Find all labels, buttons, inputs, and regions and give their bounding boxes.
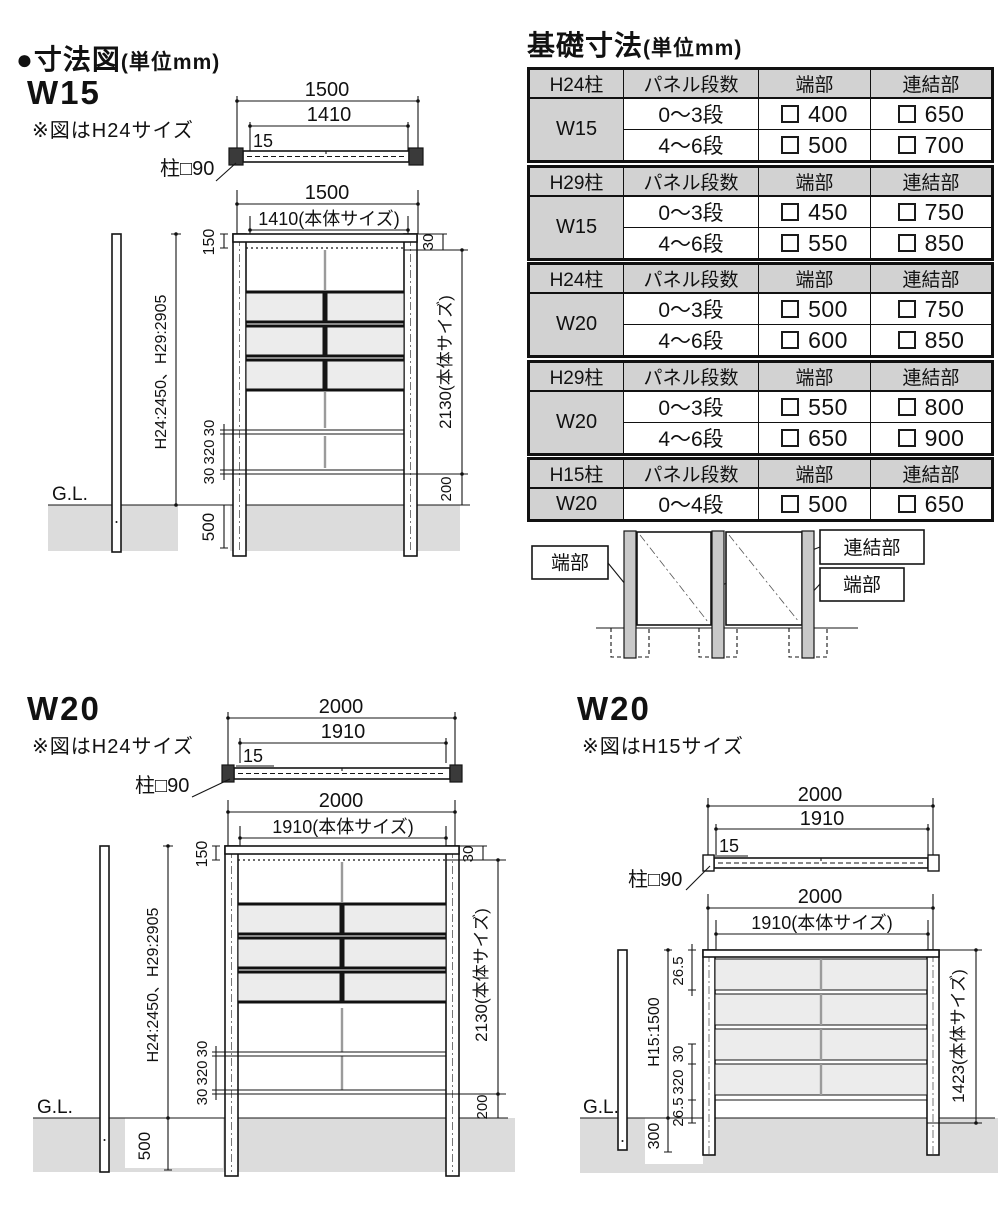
end-cell: 600 (759, 325, 871, 357)
dim-overall: 1500 (305, 79, 350, 101)
dim-top-offset: 26.5 (670, 956, 687, 985)
post-size-label: 柱□90 (135, 774, 189, 797)
dim-inner: 1910 (800, 808, 845, 830)
dim-body-height: 1423(本体サイズ) (949, 969, 968, 1103)
dim-embed: 500 (135, 1132, 154, 1160)
joint-cell: 700 (871, 130, 993, 162)
size-cell: W15 (529, 98, 624, 162)
col-joint-part: 連結部 (871, 459, 993, 489)
end-cell: 450 (759, 196, 871, 228)
joint-cell: 650 (871, 98, 993, 130)
joint-cell: 650 (871, 488, 993, 521)
col-post-type: H29柱 (529, 167, 624, 197)
post-size-label: 柱□90 (160, 157, 214, 180)
post-joint (712, 531, 724, 658)
w15-front-view: 1500 1410(本体サイズ) 150 H24: (48, 182, 470, 556)
square-dim-icon (898, 105, 916, 123)
end-cell: 550 (759, 391, 871, 423)
dim-rail-b: 30 (201, 468, 218, 485)
steps-cell: 0〜3段 (624, 98, 759, 130)
col-post-type: H24柱 (529, 69, 624, 99)
col-panel-steps: パネル段数 (624, 362, 759, 392)
dim-overall: 2000 (319, 790, 364, 812)
table-row: W15 0〜3段 450 750 (529, 196, 993, 228)
size-cell: W20 (529, 488, 624, 521)
square-dim-icon (781, 105, 799, 123)
table-row: W20 0〜3段 550 800 (529, 391, 993, 423)
square-dim-icon (781, 495, 799, 513)
post-end-right (802, 531, 814, 658)
panel-rows (246, 292, 404, 390)
w15-top-view: 1500 1410 15 柱□90 (160, 79, 423, 181)
foundation-table-h24-w15: H24柱 パネル段数 端部 連結部 W15 0〜3段 400 650 4〜6段 … (527, 67, 994, 163)
joint-cell: 800 (871, 391, 993, 423)
dim-offset: 15 (243, 746, 263, 766)
col-end-part: 端部 (759, 362, 871, 392)
square-dim-icon (898, 300, 916, 318)
foundation-table-h29-w15: H29柱 パネル段数 端部 連結部 W15 0〜3段 450 750 4〜6段 … (527, 165, 994, 261)
dim-overall: 2000 (798, 784, 843, 806)
col-post-type: H29柱 (529, 362, 624, 392)
ground-level-label: G.L. (37, 1097, 73, 1118)
end-cell: 400 (759, 98, 871, 130)
w20-h15-front-view: 2000 1910(本体サイズ) 26.5 H15:1500 30 320 26… (580, 886, 998, 1173)
steps-cell: 4〜6段 (624, 130, 759, 162)
post-end-left (624, 531, 636, 658)
end-cell: 550 (759, 228, 871, 260)
w20-h15-top-view: 2000 1910 15 柱□90 (628, 784, 939, 891)
dim-post-height: H24:2450、H29:2905 (145, 908, 162, 1063)
dim-rail-a: 30 (194, 1041, 211, 1058)
foundation-table-h24-w20: H24柱 パネル段数 端部 連結部 W20 0〜3段 500 750 4〜6段 … (527, 262, 994, 358)
dim-post-height: H15:1500 (646, 997, 663, 1066)
title-text: ●寸法図 (16, 44, 121, 75)
dim-top-offset: 150 (201, 229, 218, 256)
square-dim-icon (781, 398, 799, 416)
dim-offset: 15 (253, 131, 273, 151)
square-dim-icon (781, 136, 799, 154)
post-size-label: 柱□90 (628, 868, 682, 891)
dim-rail-b: 26.5 (670, 1097, 687, 1126)
end-cell: 500 (759, 130, 871, 162)
joint-cell: 750 (871, 196, 993, 228)
size-cell: W15 (529, 196, 624, 260)
top-rail (233, 234, 417, 242)
leader-line (192, 779, 230, 797)
end-post (112, 234, 121, 552)
joint-part-label: 連結部 (843, 537, 900, 559)
end-part-label-right: 端部 (843, 574, 881, 596)
dim-rail-a: 30 (670, 1046, 687, 1063)
dim-inner: 1410 (307, 104, 352, 126)
foundation-table-h29-w20: H29柱 パネル段数 端部 連結部 W20 0〜3段 550 800 4〜6段 … (527, 360, 994, 456)
dim-inner: 1910(本体サイズ) (751, 913, 893, 933)
foundation-table-h15-w20: H15柱 パネル段数 端部 連結部 W20 0〜4段 500 650 (527, 457, 994, 522)
steps-cell: 0〜3段 (624, 391, 759, 423)
dim-body-height: 2130(本体サイズ) (472, 908, 491, 1042)
square-dim-icon (898, 203, 916, 221)
square-dim-icon (781, 300, 799, 318)
steps-cell: 0〜4段 (624, 488, 759, 521)
square-dim-icon (898, 495, 916, 513)
dim-embed: 300 (646, 1123, 663, 1150)
col-end-part: 端部 (759, 459, 871, 489)
dim-rail-gap: 320 (670, 1069, 687, 1094)
ground-hatch (48, 505, 460, 551)
dim-offset: 15 (719, 836, 739, 856)
dim-body-height: 2130(本体サイズ) (436, 295, 455, 429)
bottom-rails (216, 1052, 446, 1094)
bottom-rails (224, 430, 404, 474)
dim-top-offset: 150 (194, 841, 211, 868)
w20-h24-front-view: 2000 1910(本体サイズ) 150 H24: (33, 790, 515, 1176)
dim-post-height: H24:2450、H29:2905 (153, 295, 170, 450)
w20-h24-top-view: 2000 1910 15 柱□90 (135, 696, 462, 797)
joint-cell: 900 (871, 423, 993, 455)
col-joint-part: 連結部 (871, 362, 993, 392)
dim-inner: 1910(本体サイズ) (272, 817, 414, 837)
col-joint-part: 連結部 (871, 264, 993, 294)
end-post (618, 950, 627, 1150)
end-post (100, 846, 109, 1172)
end-cell: 500 (759, 293, 871, 325)
square-dim-icon (781, 331, 799, 349)
joint-cell: 850 (871, 228, 993, 260)
square-dim-icon (898, 331, 916, 349)
top-rail (703, 950, 939, 957)
square-dim-icon (898, 234, 916, 252)
table-row: W20 0〜4段 500 650 (529, 488, 993, 521)
steps-cell: 4〜6段 (624, 228, 759, 260)
dim-embed: 500 (199, 513, 218, 541)
dim-clearance: 200 (438, 476, 455, 501)
dim-top-gap: 30 (420, 234, 437, 251)
square-dim-icon (898, 136, 916, 154)
end-part-label-left: 端部 (551, 552, 589, 574)
dim-inner: 1910 (321, 721, 366, 743)
leader-line (216, 163, 236, 181)
end-cell: 500 (759, 488, 871, 521)
dim-overall: 2000 (798, 886, 843, 908)
ground-level-label: G.L. (583, 1097, 619, 1118)
joint-cell: 850 (871, 325, 993, 357)
dim-overall: 1500 (305, 182, 350, 204)
col-panel-steps: パネル段数 (624, 167, 759, 197)
square-dim-icon (781, 234, 799, 252)
size-cell: W20 (529, 391, 624, 455)
end-joint-legend-diagram: 端部 連結部 端部 (525, 520, 1000, 695)
dimension-drawing-title: ●寸法図(単位mm) (16, 38, 220, 78)
col-joint-part: 連結部 (871, 69, 993, 99)
dim-rail-gap: 320 (194, 1060, 211, 1085)
panel-rows (238, 904, 446, 1002)
table-row: W20 0〜3段 500 750 (529, 293, 993, 325)
dim-inner: 1410(本体サイズ) (258, 209, 400, 229)
table-row: W15 0〜3段 400 650 (529, 98, 993, 130)
col-joint-part: 連結部 (871, 167, 993, 197)
steps-cell: 0〜3段 (624, 293, 759, 325)
panel-rows (715, 959, 927, 1100)
w20-h15-dimension-drawing: 2000 1910 15 柱□90 2000 1910(本体サイズ) (575, 690, 1000, 1209)
square-dim-icon (781, 429, 799, 447)
col-panel-steps: パネル段数 (624, 264, 759, 294)
dim-rail-gap: 320 (201, 439, 218, 464)
title-unit: (単位mm) (643, 37, 742, 60)
square-dim-icon (781, 203, 799, 221)
steps-cell: 4〜6段 (624, 325, 759, 357)
col-post-type: H15柱 (529, 459, 624, 489)
joint-cell: 750 (871, 293, 993, 325)
steps-cell: 4〜6段 (624, 423, 759, 455)
dim-overall: 2000 (319, 696, 364, 718)
col-panel-steps: パネル段数 (624, 459, 759, 489)
top-rail (225, 846, 459, 854)
title-unit: (単位mm) (121, 51, 220, 74)
foundation-title: 基礎寸法(単位mm) (527, 24, 742, 64)
size-cell: W20 (529, 293, 624, 357)
col-end-part: 端部 (759, 167, 871, 197)
square-dim-icon (898, 398, 916, 416)
end-cell: 650 (759, 423, 871, 455)
square-dim-icon (898, 429, 916, 447)
col-post-type: H24柱 (529, 264, 624, 294)
dim-clearance: 200 (474, 1094, 491, 1119)
title-text: 基礎寸法 (527, 30, 643, 61)
w15-dimension-drawing: 1500 1410 15 柱□90 1500 1410(本体サイズ) (30, 80, 520, 610)
dim-rail-b: 30 (194, 1089, 211, 1106)
w20-h24-dimension-drawing: 2000 1910 15 柱□90 2000 1910(本体サイズ) (30, 695, 525, 1209)
col-panel-steps: パネル段数 (624, 69, 759, 99)
col-end-part: 端部 (759, 69, 871, 99)
ground-level-label: G.L. (52, 484, 88, 505)
steps-cell: 0〜3段 (624, 196, 759, 228)
leader-line (686, 866, 710, 890)
dim-rail-a: 30 (201, 420, 218, 437)
col-end-part: 端部 (759, 264, 871, 294)
